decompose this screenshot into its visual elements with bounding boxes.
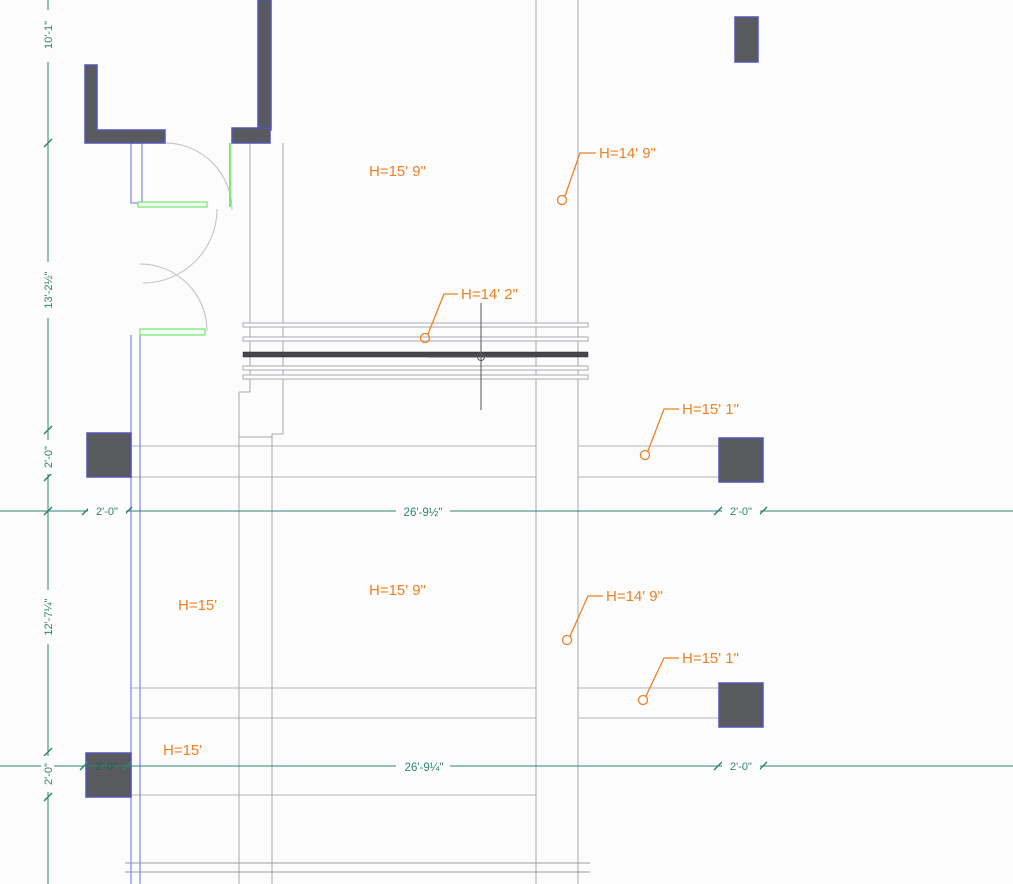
door-swing-arc [140, 264, 207, 331]
label-masks [41, 10, 760, 792]
dim-label-upper-left[interactable]: 2'-0" [96, 506, 118, 518]
crosshair-cursor [427, 303, 535, 410]
leader-circle [558, 196, 567, 205]
door-jamb [131, 143, 142, 203]
dim-label-lower-right[interactable]: 2'-0" [730, 761, 752, 773]
solid-walls [85, 0, 758, 143]
leader-line [570, 596, 603, 636]
leader-line [648, 409, 679, 451]
selected-louver-line[interactable] [243, 352, 588, 357]
column[interactable] [87, 433, 131, 477]
leader-circle [563, 636, 572, 645]
dim-label-left-3[interactable]: 12'-7¼" [43, 598, 55, 635]
door-sill-green [140, 329, 205, 335]
floor-plan-drawing: 10'-1" 13'-2½" 2'-0" 12'-7¼" 2'-0" 2'-0"… [0, 0, 1013, 884]
blue-wall-face [131, 143, 142, 884]
height-label-bottom-right[interactable]: H=15' 1" [682, 650, 739, 667]
door-swing-arc [165, 143, 232, 210]
wall-lines [239, 0, 578, 884]
leader-line [565, 153, 596, 196]
cad-drawing-viewport[interactable]: 10'-1" 13'-2½" 2'-0" 12'-7¼" 2'-0" 2'-0"… [0, 0, 1013, 884]
door-swing-arc [143, 209, 217, 283]
column[interactable] [86, 753, 131, 797]
wall-stub [735, 17, 758, 62]
door-assembly [138, 143, 232, 335]
dim-label-upper-right[interactable]: 2'-0" [730, 506, 752, 518]
louver-line [243, 337, 588, 341]
wall-segment [232, 128, 270, 143]
height-label-lower-center[interactable]: H=15' 9" [369, 582, 426, 599]
louver-line [243, 366, 588, 370]
leader-circle [641, 451, 650, 460]
height-label-mid-left[interactable]: H=15' [178, 597, 217, 614]
wall-corner-L [85, 65, 165, 143]
dim-label-left-2[interactable]: 2'-0" [43, 446, 55, 468]
height-annotations: H=15' 9" H=14' 9" H=14' 2" H=15' 1" H=15… [163, 145, 739, 759]
height-label-lower-right[interactable]: H=14' 9" [606, 588, 663, 605]
dim-label-lower-left[interactable]: 2'-0" [95, 761, 117, 773]
column[interactable] [719, 438, 763, 482]
door-sill-green [138, 202, 207, 207]
column[interactable] [719, 683, 763, 727]
height-label-upper-right[interactable]: H=14' 9" [599, 145, 656, 162]
height-label-bottom-left[interactable]: H=15' [163, 742, 202, 759]
dim-label-lower-center[interactable]: 26'-9¼" [405, 762, 444, 774]
louver-line [243, 375, 588, 379]
leader-line [428, 294, 458, 334]
dim-label-left-0[interactable]: 10'-1" [43, 21, 55, 49]
height-label-upper-center[interactable]: H=15' 9" [369, 163, 426, 180]
height-label-window-head[interactable]: H=14' 2" [461, 286, 518, 303]
louver-line [243, 323, 588, 327]
dim-label-upper-center[interactable]: 26'-9½" [404, 507, 443, 519]
leader-line [646, 658, 679, 696]
height-label-mid-right[interactable]: H=15' 1" [682, 401, 739, 418]
dim-label-left-1[interactable]: 13'-2½" [43, 271, 55, 308]
leader-circle [639, 696, 648, 705]
wall-segment [258, 0, 271, 130]
dim-label-left-4[interactable]: 2'-0" [43, 763, 55, 785]
